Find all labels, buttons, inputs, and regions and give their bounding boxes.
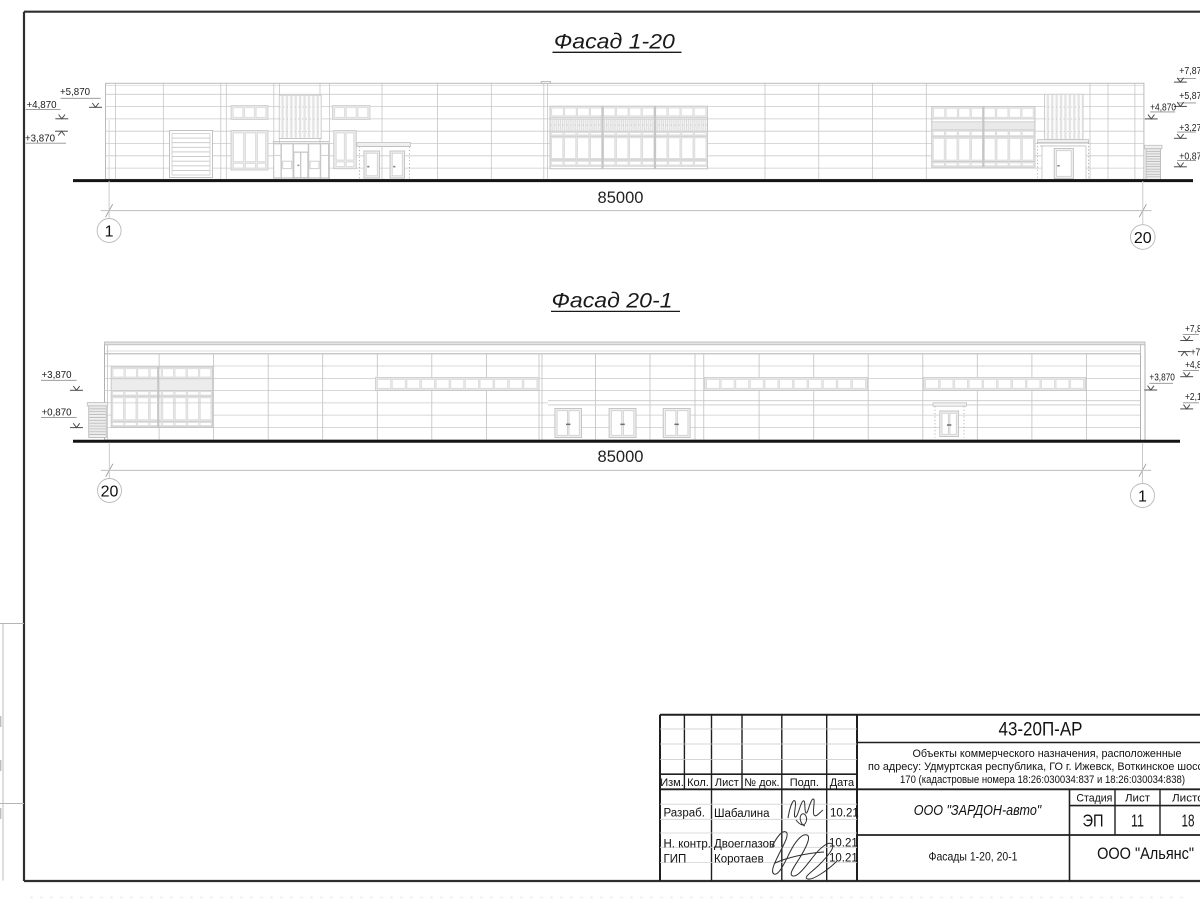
svg-text:Фасады 1-20, 20-1: Фасады 1-20, 20-1 bbox=[929, 850, 1018, 864]
svg-text:1: 1 bbox=[105, 223, 114, 240]
svg-text:20: 20 bbox=[101, 483, 119, 500]
svg-text:Н. контр.: Н. контр. bbox=[664, 838, 711, 850]
svg-text:+3,870: +3,870 bbox=[1149, 373, 1175, 384]
svg-text:ООО "ЗАРДОН-авто": ООО "ЗАРДОН-авто" bbox=[914, 802, 1042, 819]
svg-text:Дата: Дата bbox=[830, 777, 855, 789]
svg-text:Шабалина: Шабалина bbox=[714, 808, 770, 820]
svg-text:11: 11 bbox=[1131, 811, 1144, 831]
svg-text:43-20П-АР: 43-20П-АР bbox=[999, 720, 1083, 741]
svg-text:18: 18 bbox=[1182, 811, 1195, 831]
svg-text:1: 1 bbox=[1138, 488, 1147, 505]
svg-text:Объекты коммерческого назначен: Объекты коммерческого назначения, распол… bbox=[913, 748, 1182, 760]
svg-text:+7,870: +7,870 bbox=[1185, 324, 1200, 335]
svg-text:10.21: 10.21 bbox=[830, 808, 859, 820]
svg-text:Подп.: Подп. bbox=[790, 777, 819, 789]
svg-text:170 (кадастровые номера 18:26:: 170 (кадастровые номера 18:26:030034:837… bbox=[900, 774, 1185, 786]
svg-text:85000: 85000 bbox=[598, 448, 644, 466]
svg-text:Лист: Лист bbox=[715, 777, 739, 789]
svg-text:+7,870: +7,870 bbox=[1179, 66, 1200, 77]
svg-text:ЭП: ЭП bbox=[1083, 810, 1104, 830]
svg-text:ООО "Альянс": ООО "Альянс" bbox=[1097, 845, 1194, 863]
svg-text:Фасад 20-1: Фасад 20-1 bbox=[552, 289, 673, 313]
svg-text:10.21: 10.21 bbox=[829, 837, 858, 849]
svg-text:10.21: 10.21 bbox=[829, 853, 858, 865]
svg-text:+5,870: +5,870 bbox=[60, 87, 90, 98]
svg-text:Листов: Листов bbox=[1172, 793, 1200, 805]
svg-text:+0,870: +0,870 bbox=[42, 407, 72, 418]
svg-text:+2,120: +2,120 bbox=[1185, 392, 1200, 403]
svg-text:85000: 85000 bbox=[598, 189, 644, 207]
svg-text:ГИП: ГИП bbox=[664, 853, 687, 865]
svg-text:+4,870: +4,870 bbox=[1185, 360, 1200, 371]
svg-text:Лист: Лист bbox=[1125, 793, 1150, 805]
svg-text:+7,350: +7,350 bbox=[1191, 348, 1200, 359]
svg-text:Фасад 1-20: Фасад 1-20 bbox=[554, 30, 675, 54]
svg-text:Разраб.: Разраб. bbox=[664, 808, 705, 820]
svg-text:20: 20 bbox=[1134, 230, 1152, 247]
svg-text:Коротаев: Коротаев bbox=[714, 854, 764, 866]
svg-text:Кол.: Кол. bbox=[687, 777, 709, 789]
svg-text:Стадия: Стадия bbox=[1076, 793, 1112, 805]
svg-text:+3,870: +3,870 bbox=[42, 370, 72, 381]
svg-text:+5,870: +5,870 bbox=[1179, 91, 1200, 102]
svg-text:Изм.: Изм. bbox=[660, 777, 684, 789]
svg-text:Двоеглазов: Двоеглазов bbox=[714, 839, 775, 851]
svg-text:по адресу: Удмуртская республи: по адресу: Удмуртская республика, ГО г. … bbox=[868, 761, 1200, 773]
svg-text:№ док.: № док. bbox=[744, 777, 779, 789]
